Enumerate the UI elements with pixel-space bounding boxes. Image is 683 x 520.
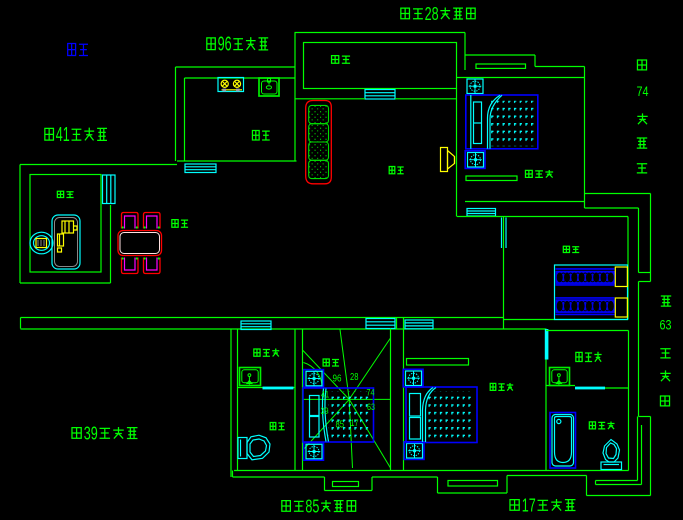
svg-text:39: 39 xyxy=(84,422,98,443)
svg-text:96: 96 xyxy=(218,33,232,56)
svg-text:63: 63 xyxy=(367,402,375,412)
svg-text:28: 28 xyxy=(350,372,359,383)
svg-text:17: 17 xyxy=(351,418,359,429)
svg-text:74: 74 xyxy=(367,388,375,398)
svg-text:41: 41 xyxy=(56,123,70,146)
svg-text:85: 85 xyxy=(336,420,345,431)
svg-text:39: 39 xyxy=(321,406,329,417)
svg-text:28: 28 xyxy=(425,3,439,24)
svg-text:85: 85 xyxy=(305,495,319,516)
svg-text:41: 41 xyxy=(321,390,329,401)
svg-text:74: 74 xyxy=(637,84,649,99)
svg-text:96: 96 xyxy=(333,374,342,385)
svg-text:63: 63 xyxy=(660,318,672,333)
svg-text:17: 17 xyxy=(522,494,536,515)
